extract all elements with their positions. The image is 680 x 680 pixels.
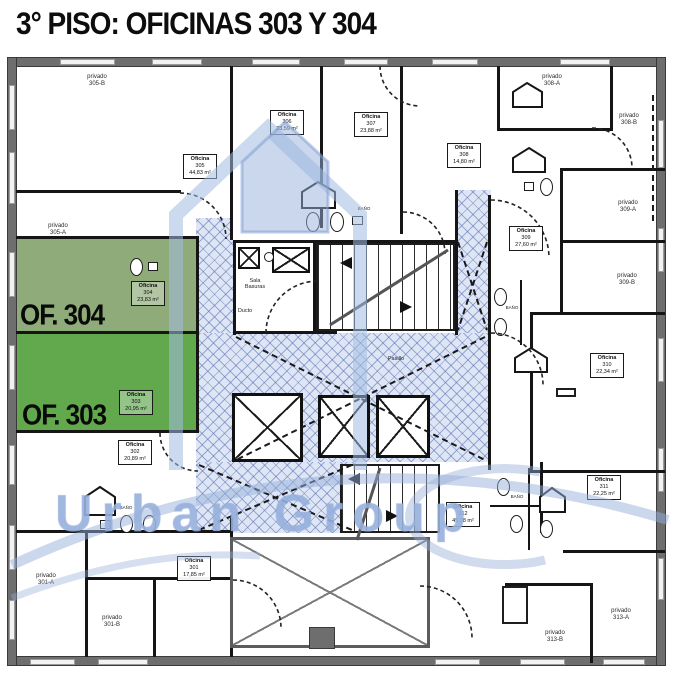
sink [352, 216, 363, 225]
toilet [494, 288, 507, 306]
window [9, 252, 15, 297]
window [9, 445, 15, 485]
window [658, 338, 664, 382]
wall [153, 580, 156, 657]
wall [563, 240, 665, 243]
toilet [306, 212, 320, 232]
office-label-302: Oficina 302 20,89 m² [118, 440, 152, 465]
room-label-305b: privado 305-B [75, 74, 119, 88]
toilet [130, 258, 143, 276]
window [9, 600, 15, 640]
drain-circle [264, 252, 274, 262]
label-sala-basuras: Sala Basuras [238, 278, 272, 291]
closet [502, 586, 528, 624]
window [435, 659, 480, 665]
highlight-label-of303: OF. 303 [22, 398, 106, 432]
toilet [540, 520, 553, 538]
window [9, 152, 15, 204]
urban-group-watermark-text: Urban Group [55, 484, 475, 544]
window [30, 659, 75, 665]
label-bano: BAÑO [500, 305, 524, 310]
wall [530, 312, 665, 315]
room-label-308a: privado 308-A [530, 74, 574, 88]
room-label-301b: privado 301-B [90, 615, 134, 629]
room-label-301a: privado 301-A [24, 573, 68, 587]
wall [488, 195, 491, 470]
corridor-hatch-left-band [196, 218, 233, 333]
sink [148, 262, 158, 271]
label-pasillo: Pasillo [376, 356, 416, 362]
window [9, 345, 15, 390]
desk [556, 388, 576, 397]
toilet [540, 178, 553, 196]
toilet [494, 318, 507, 336]
service-shaft [272, 247, 310, 273]
elevator-shaft [376, 395, 430, 458]
office-label-301: Oficina 301 17,85 m² [177, 556, 211, 581]
wall [320, 66, 323, 228]
window [152, 59, 202, 65]
window [98, 659, 148, 665]
wall [400, 66, 403, 234]
wall [530, 470, 665, 473]
stairwell-upper [316, 243, 455, 331]
office-label-308: Oficina 308 14,80 m² [447, 143, 481, 168]
wall [520, 280, 522, 345]
wall [233, 240, 236, 335]
fan-box [238, 247, 260, 269]
office-label-309: Oficina 309 27,60 m² [509, 226, 543, 251]
window [432, 59, 478, 65]
office-label-303: Oficina 303 20,95 m² [119, 390, 153, 415]
room-label-308b: privado 308-B [607, 113, 651, 127]
page-title: 3° PISO: OFICINAS 303 Y 304 [16, 6, 376, 42]
room-label-313a: privado 313-A [599, 608, 643, 622]
toilet [510, 515, 523, 533]
wall [196, 236, 199, 433]
window [344, 59, 388, 65]
wall [563, 550, 665, 553]
room-label-305a: privado 305-A [36, 223, 80, 237]
wall [528, 468, 530, 550]
room-label-309b: privado 309-B [605, 273, 649, 287]
room-label-309a: privado 309-A [606, 200, 650, 214]
office-label-305: Oficina 305 44,83 m² [183, 154, 217, 179]
wall [85, 533, 88, 657]
wall [497, 66, 500, 130]
highlight-label-of304: OF. 304 [20, 298, 104, 332]
window [658, 558, 664, 600]
window [560, 59, 610, 65]
wall [455, 190, 458, 335]
window [603, 659, 645, 665]
wall [310, 628, 334, 648]
office-label-306: Oficina 306 23,59 m² [270, 110, 304, 135]
corridor-hatch-right-band [455, 190, 491, 333]
window [60, 59, 115, 65]
wall [490, 505, 563, 507]
wall [530, 312, 533, 472]
elevator-shaft [318, 395, 370, 458]
room-label-313b: privado 313-B [533, 630, 577, 644]
wall [560, 168, 665, 171]
label-bano: BAÑO [352, 206, 376, 211]
toilet [330, 212, 344, 232]
wall [590, 583, 593, 663]
wall [233, 331, 337, 334]
office-label-307: Oficina 307 23,88 m² [354, 112, 388, 137]
label-bano: BAÑO [505, 494, 529, 499]
sink [524, 182, 534, 191]
window [658, 228, 664, 272]
floor-plan-page: 3° PISO: OFICINAS 303 Y 304 [0, 0, 680, 680]
label-ducto: Ducto [230, 308, 260, 314]
wall [16, 190, 181, 193]
office-label-310: Oficina 310 22,34 m² [590, 353, 624, 378]
window [9, 525, 15, 570]
wall [230, 66, 233, 240]
office-label-304: Oficina 304 23,83 m² [131, 281, 165, 306]
window [658, 120, 664, 168]
window [252, 59, 300, 65]
wall [497, 128, 612, 131]
window [9, 85, 15, 130]
elevator-shaft [232, 393, 303, 462]
window [520, 659, 565, 665]
office-label-311: Oficina 311 22,25 m² [587, 475, 621, 500]
